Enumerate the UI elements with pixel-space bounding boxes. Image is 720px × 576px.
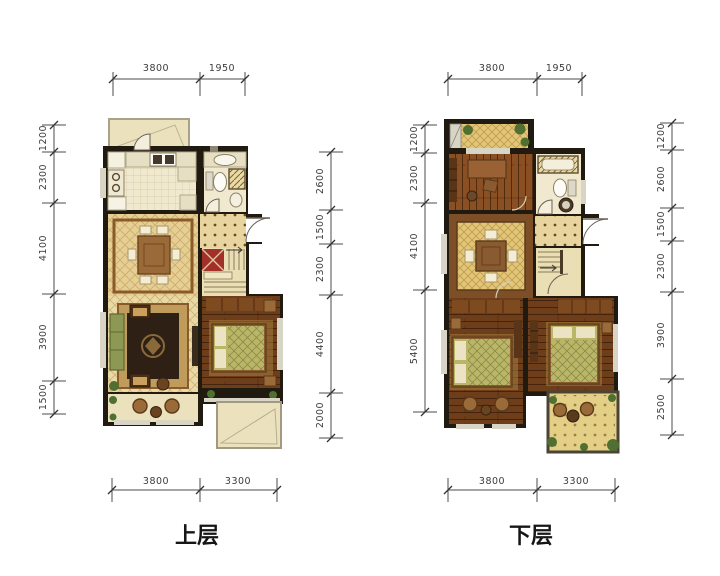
stairs-lower bbox=[536, 248, 581, 296]
floor-plan-upper bbox=[100, 119, 283, 448]
dim-label: 3900 bbox=[656, 322, 667, 348]
floor-label-lower: 下层 bbox=[509, 524, 553, 549]
dim-label: 2300 bbox=[38, 164, 49, 190]
dims-upper-top bbox=[109, 72, 249, 96]
lower-top-balcony bbox=[444, 119, 534, 153]
dim-label: 1200 bbox=[409, 126, 420, 152]
dim-label: 1950 bbox=[546, 63, 572, 74]
bedroom-lower-left bbox=[449, 298, 523, 429]
balcony-upper bbox=[108, 394, 198, 425]
floor-plan-lower bbox=[441, 119, 619, 452]
dim-label: 1200 bbox=[656, 123, 667, 149]
dim-label: 4400 bbox=[315, 331, 326, 357]
dims-lower-bottom bbox=[444, 478, 619, 502]
living-room bbox=[108, 296, 198, 392]
kitchen bbox=[108, 152, 196, 210]
dim-label: 1200 bbox=[38, 125, 49, 151]
dim-label: 2600 bbox=[656, 166, 667, 192]
dim-label: 2600 bbox=[315, 168, 326, 194]
dim-label: 2000 bbox=[315, 402, 326, 428]
dining-lower bbox=[449, 214, 533, 298]
dim-label: 3800 bbox=[143, 476, 169, 487]
dim-label: 3800 bbox=[479, 63, 505, 74]
dim-label: 2300 bbox=[409, 165, 420, 191]
dining-upper bbox=[108, 214, 198, 296]
entry-hall-lower bbox=[535, 216, 608, 246]
dim-label: 2500 bbox=[656, 394, 667, 420]
dims-lower-top bbox=[444, 72, 586, 96]
dim-label: 1500 bbox=[656, 211, 667, 237]
dim-label: 3300 bbox=[563, 476, 589, 487]
dims-upper-bottom bbox=[108, 478, 281, 502]
terrace-lower bbox=[547, 392, 619, 452]
dim-label: 2300 bbox=[315, 256, 326, 282]
dim-label: 4100 bbox=[409, 233, 420, 259]
bedroom-lower-right bbox=[528, 298, 618, 392]
terrace-upper bbox=[217, 402, 281, 448]
floorplan-image: 3800 1950 3800 3300 1200 2300 4100 3900 … bbox=[0, 0, 720, 576]
dim-label: 3900 bbox=[38, 324, 49, 350]
bedroom-upper bbox=[202, 296, 280, 402]
bathroom-upper bbox=[204, 152, 246, 212]
dim-label: 2300 bbox=[656, 253, 667, 279]
stairs-upper bbox=[202, 247, 246, 296]
dim-label: 3800 bbox=[143, 63, 169, 74]
study bbox=[449, 148, 533, 210]
dim-label: 1500 bbox=[315, 214, 326, 240]
dim-label: 5400 bbox=[409, 338, 420, 364]
dim-label: 3800 bbox=[479, 476, 505, 487]
floorplan-svg: 3800 1950 3800 3300 1200 2300 4100 3900 … bbox=[0, 0, 720, 576]
dim-label: 4100 bbox=[38, 235, 49, 261]
dim-label: 3300 bbox=[225, 476, 251, 487]
floor-label-upper: 上层 bbox=[175, 524, 219, 549]
dim-label: 1500 bbox=[38, 384, 49, 410]
bathroom-lower bbox=[536, 154, 581, 214]
dim-label: 1950 bbox=[209, 63, 235, 74]
